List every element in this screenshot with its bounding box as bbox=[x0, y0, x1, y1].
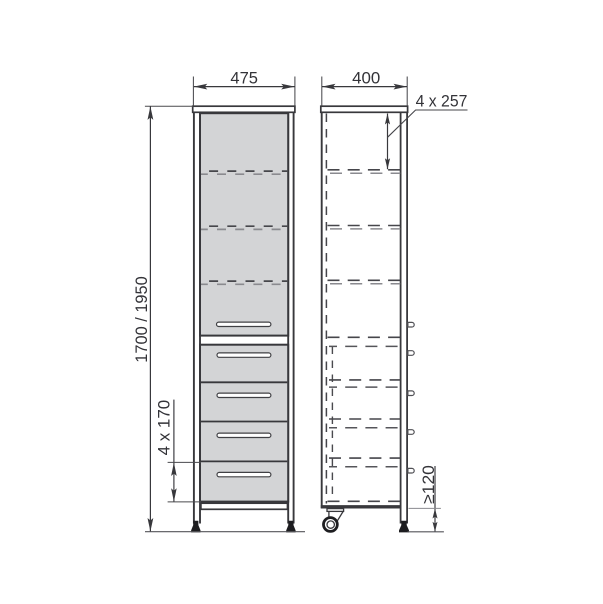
svg-text:400: 400 bbox=[352, 69, 380, 88]
svg-text:4 x 170: 4 x 170 bbox=[155, 400, 174, 456]
svg-text:475: 475 bbox=[230, 69, 258, 88]
svg-text:4 x 257: 4 x 257 bbox=[416, 91, 468, 110]
svg-text:1700 / 1950: 1700 / 1950 bbox=[132, 276, 151, 362]
